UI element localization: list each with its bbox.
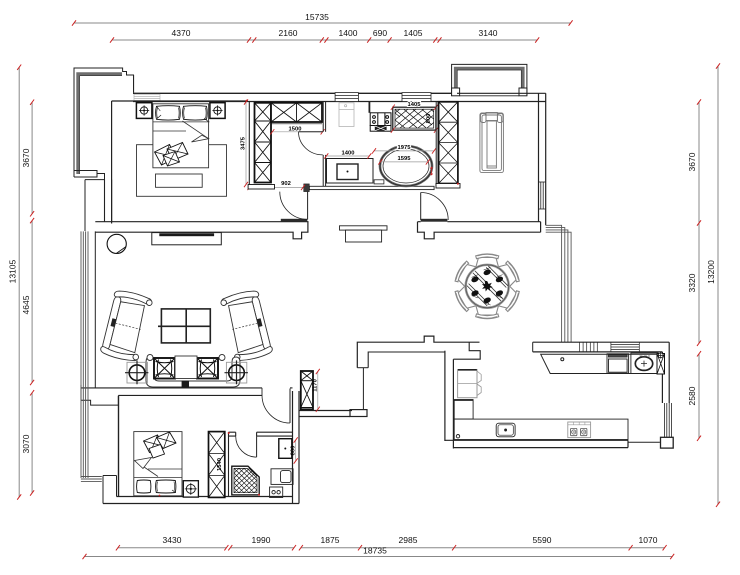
svg-text:13105: 13105 [8,260,18,284]
svg-text:4645: 4645 [21,295,31,314]
svg-text:3140: 3140 [479,28,498,38]
svg-text:3670: 3670 [21,148,31,167]
svg-text:1990: 1990 [252,535,271,545]
svg-text:2580: 2580 [687,386,697,405]
svg-text:1875: 1875 [321,535,340,545]
svg-text:5590: 5590 [533,535,552,545]
svg-text:13200: 13200 [706,260,716,284]
svg-text:3475: 3475 [241,136,247,150]
svg-text:1405: 1405 [404,28,423,38]
svg-text:3070: 3070 [21,434,31,453]
svg-text:1400: 1400 [342,151,355,157]
svg-text:800: 800 [426,114,432,124]
svg-text:2985: 2985 [399,535,418,545]
svg-text:800: 800 [291,446,297,456]
svg-text:3670: 3670 [687,152,697,171]
svg-text:18735: 18735 [363,546,387,556]
svg-text:1070: 1070 [639,535,658,545]
svg-text:1975: 1975 [398,145,412,151]
svg-text:3320: 3320 [687,273,697,292]
svg-text:1170: 1170 [312,379,318,392]
svg-text:1400: 1400 [339,28,358,38]
svg-text:15735: 15735 [305,12,329,22]
svg-text:2160: 2160 [279,28,298,38]
svg-text:4370: 4370 [172,28,191,38]
svg-text:690: 690 [373,28,387,38]
svg-text:3430: 3430 [163,535,182,545]
svg-text:1405: 1405 [408,102,422,108]
svg-text:902: 902 [281,181,291,187]
svg-text:1540: 1540 [217,458,223,471]
svg-text:1595: 1595 [398,156,412,162]
